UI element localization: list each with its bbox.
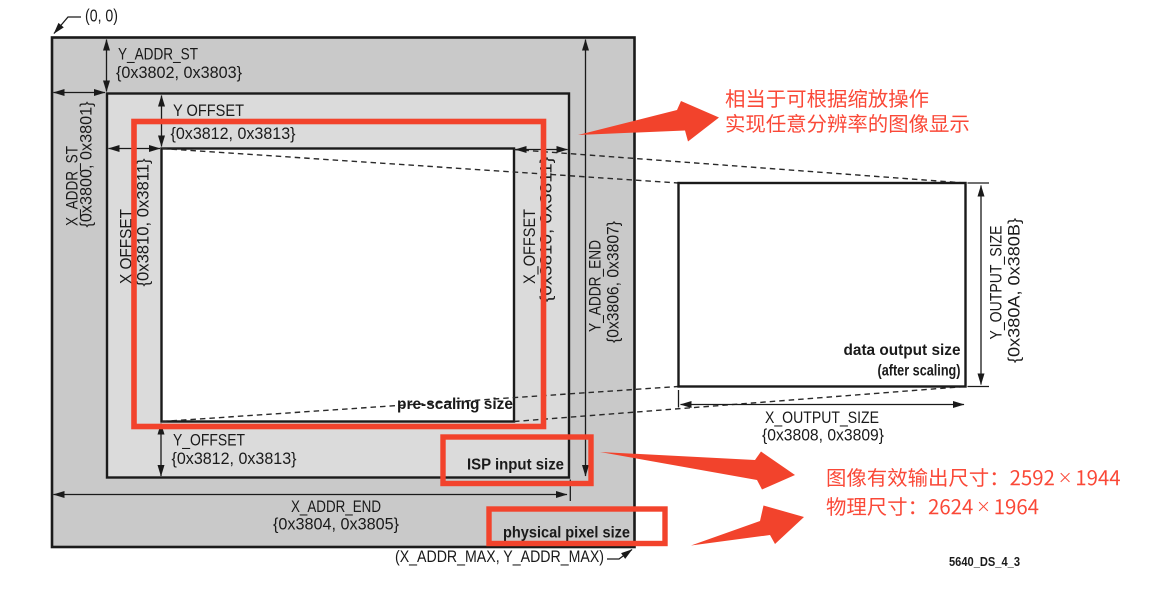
svg-text:Y_OUTPUT_SIZE: Y_OUTPUT_SIZE xyxy=(988,226,1006,340)
svg-text:ISP input size: ISP input size xyxy=(467,457,564,474)
svg-text:{0x3812, 0x3813}: {0x3812, 0x3813} xyxy=(171,125,296,143)
svg-text:{0x3810, 0x3811}: {0x3810, 0x3811} xyxy=(538,156,556,302)
svg-text:X_OFFSET: X_OFFSET xyxy=(521,209,539,284)
svg-text:{0x3808, 0x3809}: {0x3808, 0x3809} xyxy=(762,427,884,445)
svg-text:5640_DS_4_3: 5640_DS_4_3 xyxy=(949,554,1020,569)
svg-text:{0x3810, 0x3811}: {0x3810, 0x3811} xyxy=(135,158,153,286)
svg-text:Y_OFFSET: Y_OFFSET xyxy=(173,432,245,450)
svg-text:(X_ADDR_MAX, Y_ADDR_MAX): (X_ADDR_MAX, Y_ADDR_MAX) xyxy=(395,548,604,566)
svg-text:Y_ADDR_END: Y_ADDR_END xyxy=(587,240,605,332)
svg-text:{0x3804, 0x3805}: {0x3804, 0x3805} xyxy=(273,516,399,534)
svg-text:Y OFFSET: Y OFFSET xyxy=(173,102,244,120)
svg-text:{0x3800, 0x3801}: {0x3800, 0x3801} xyxy=(78,101,96,227)
svg-text:{0x380A, 0x380B}: {0x380A, 0x380B} xyxy=(1006,217,1024,363)
svg-text:{0x3802, 0x3803}: {0x3802, 0x3803} xyxy=(116,64,242,82)
svg-text:X_OUTPUT_SIZE: X_OUTPUT_SIZE xyxy=(765,409,879,427)
svg-text:physical pixel size: physical pixel size xyxy=(503,525,630,542)
svg-text:{0x3812, 0x3813}: {0x3812, 0x3813} xyxy=(172,450,297,468)
svg-text:X_ADDR_END: X_ADDR_END xyxy=(291,498,381,516)
svg-text:data output size: data output size xyxy=(844,342,961,359)
svg-text:pre-scaling size: pre-scaling size xyxy=(397,396,513,413)
svg-text:(after scaling): (after scaling) xyxy=(878,363,961,380)
svg-text:{0x3806, 0x3807}: {0x3806, 0x3807} xyxy=(605,221,623,343)
svg-text:(0, 0): (0, 0) xyxy=(85,6,118,26)
svg-text:Y_ADDR_ST: Y_ADDR_ST xyxy=(118,46,198,64)
